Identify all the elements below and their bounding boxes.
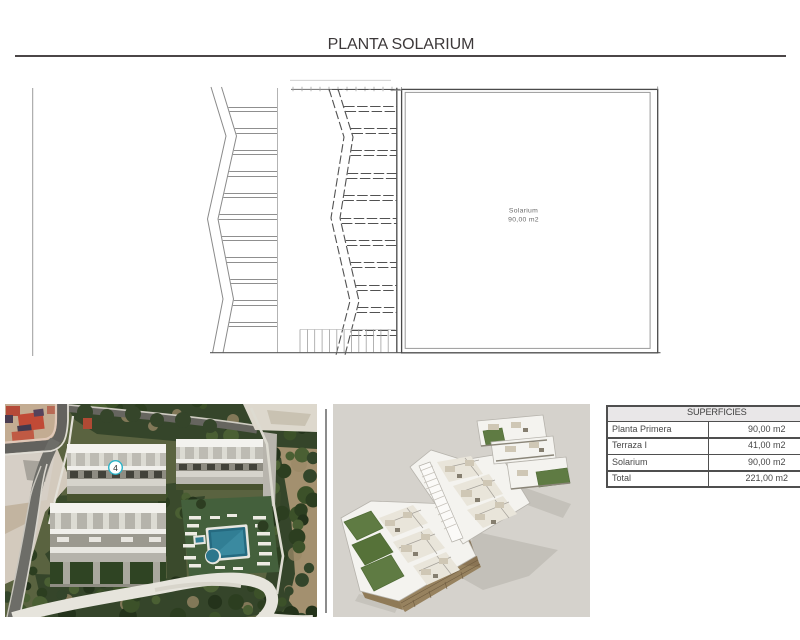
svg-text:4: 4 [113, 463, 118, 473]
svg-text:Solarium: Solarium [509, 208, 538, 215]
svg-text:90,00 m2: 90,00 m2 [508, 217, 539, 224]
